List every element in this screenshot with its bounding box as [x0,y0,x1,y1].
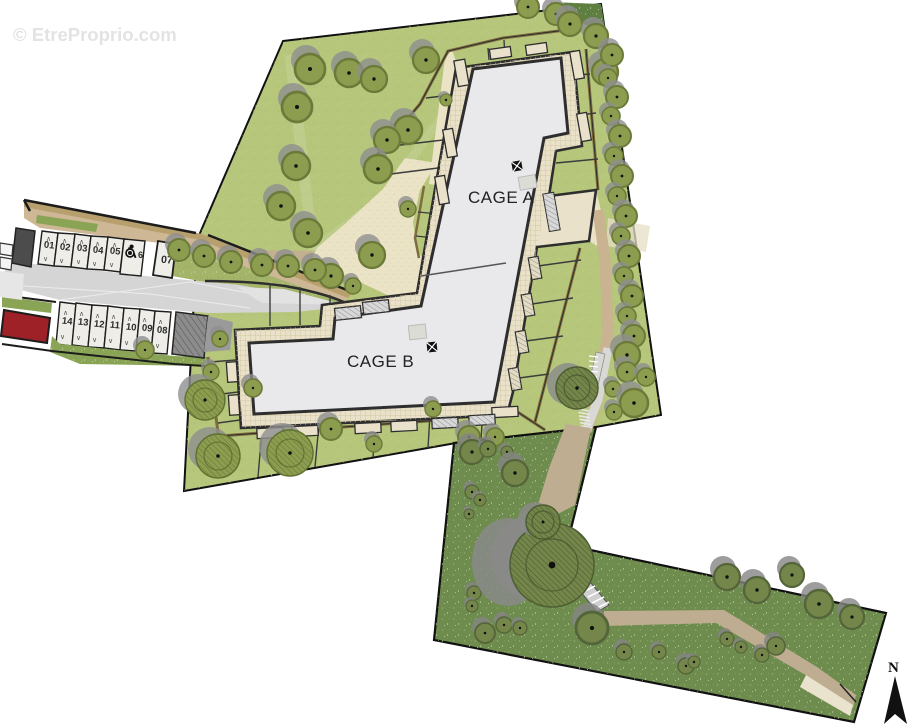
svg-text:∨: ∨ [92,337,97,344]
svg-text:∧: ∧ [46,236,51,243]
svg-text:∧: ∧ [127,316,132,323]
svg-text:© EtreProprio.com: © EtreProprio.com [13,24,177,45]
svg-text:∨: ∨ [76,335,81,342]
svg-text:∨: ∨ [109,262,114,269]
svg-text:∧: ∧ [79,239,84,246]
svg-text:∧: ∧ [79,311,84,318]
svg-text:∧: ∧ [112,242,117,249]
svg-text:∧: ∧ [63,310,68,317]
svg-text:∧: ∧ [95,241,100,248]
svg-text:∨: ∨ [108,338,113,345]
svg-text:∧: ∧ [158,319,163,326]
svg-text:6: 6 [138,250,143,260]
svg-text:∨: ∨ [43,256,48,263]
svg-text:∧: ∧ [111,314,116,321]
svg-text:∧: ∧ [95,313,100,320]
svg-text:∨: ∨ [60,334,65,341]
svg-text:10: 10 [125,322,137,334]
svg-text:N: N [888,660,899,676]
svg-text:11: 11 [109,320,121,332]
svg-text:∧: ∧ [62,238,67,245]
svg-text:∨: ∨ [76,259,81,266]
svg-text:09: 09 [141,323,153,335]
svg-text:CAGE A: CAGE A [468,188,534,207]
svg-text:∨: ∨ [59,258,64,265]
svg-text:13: 13 [77,317,89,329]
svg-text:∨: ∨ [155,343,160,350]
svg-text:14: 14 [61,316,73,328]
svg-text:∧: ∧ [142,317,147,324]
svg-text:∨: ∨ [124,340,129,347]
svg-text:CAGE B: CAGE B [347,352,414,371]
svg-text:08: 08 [156,325,168,337]
svg-text:12: 12 [93,319,105,331]
svg-text:∨: ∨ [92,261,97,268]
